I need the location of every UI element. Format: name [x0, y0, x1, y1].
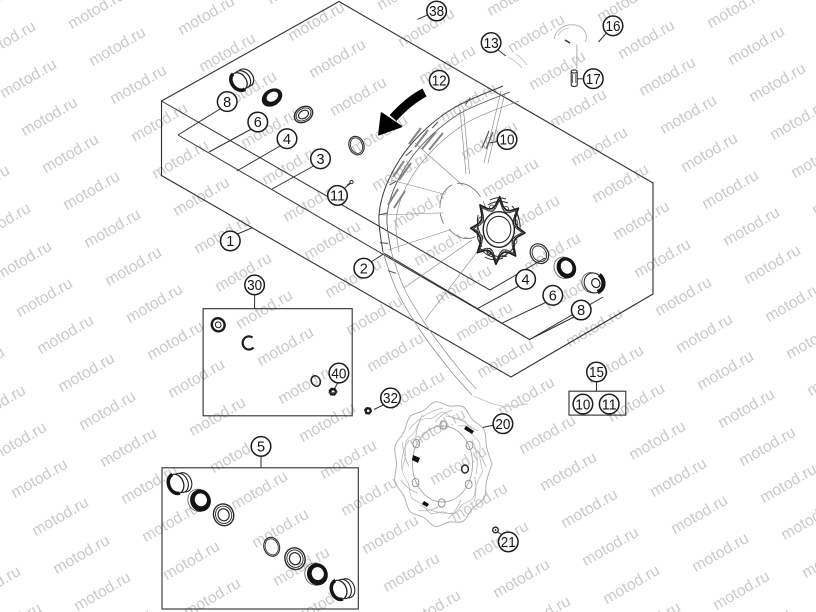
svg-text:4: 4	[283, 132, 291, 148]
svg-text:32: 32	[383, 391, 398, 407]
svg-text:6: 6	[549, 289, 557, 305]
svg-text:6: 6	[254, 115, 262, 131]
svg-text:2: 2	[360, 261, 368, 277]
svg-text:10: 10	[575, 397, 590, 413]
svg-text:11: 11	[330, 189, 345, 205]
svg-text:38: 38	[429, 4, 444, 20]
svg-text:21: 21	[501, 535, 516, 551]
svg-text:4: 4	[522, 273, 530, 289]
svg-text:13: 13	[484, 36, 499, 52]
svg-text:5: 5	[257, 440, 265, 456]
svg-text:17: 17	[586, 72, 601, 88]
svg-text:8: 8	[223, 95, 231, 111]
svg-text:1: 1	[226, 234, 234, 250]
svg-text:10: 10	[500, 133, 515, 149]
svg-text:8: 8	[577, 303, 585, 319]
svg-text:11: 11	[602, 397, 617, 413]
svg-text:15: 15	[589, 365, 604, 381]
svg-text:3: 3	[316, 152, 324, 168]
svg-text:12: 12	[432, 74, 447, 90]
svg-text:16: 16	[606, 19, 621, 35]
svg-text:20: 20	[495, 417, 510, 433]
svg-text:40: 40	[331, 366, 346, 382]
svg-text:30: 30	[247, 278, 262, 294]
